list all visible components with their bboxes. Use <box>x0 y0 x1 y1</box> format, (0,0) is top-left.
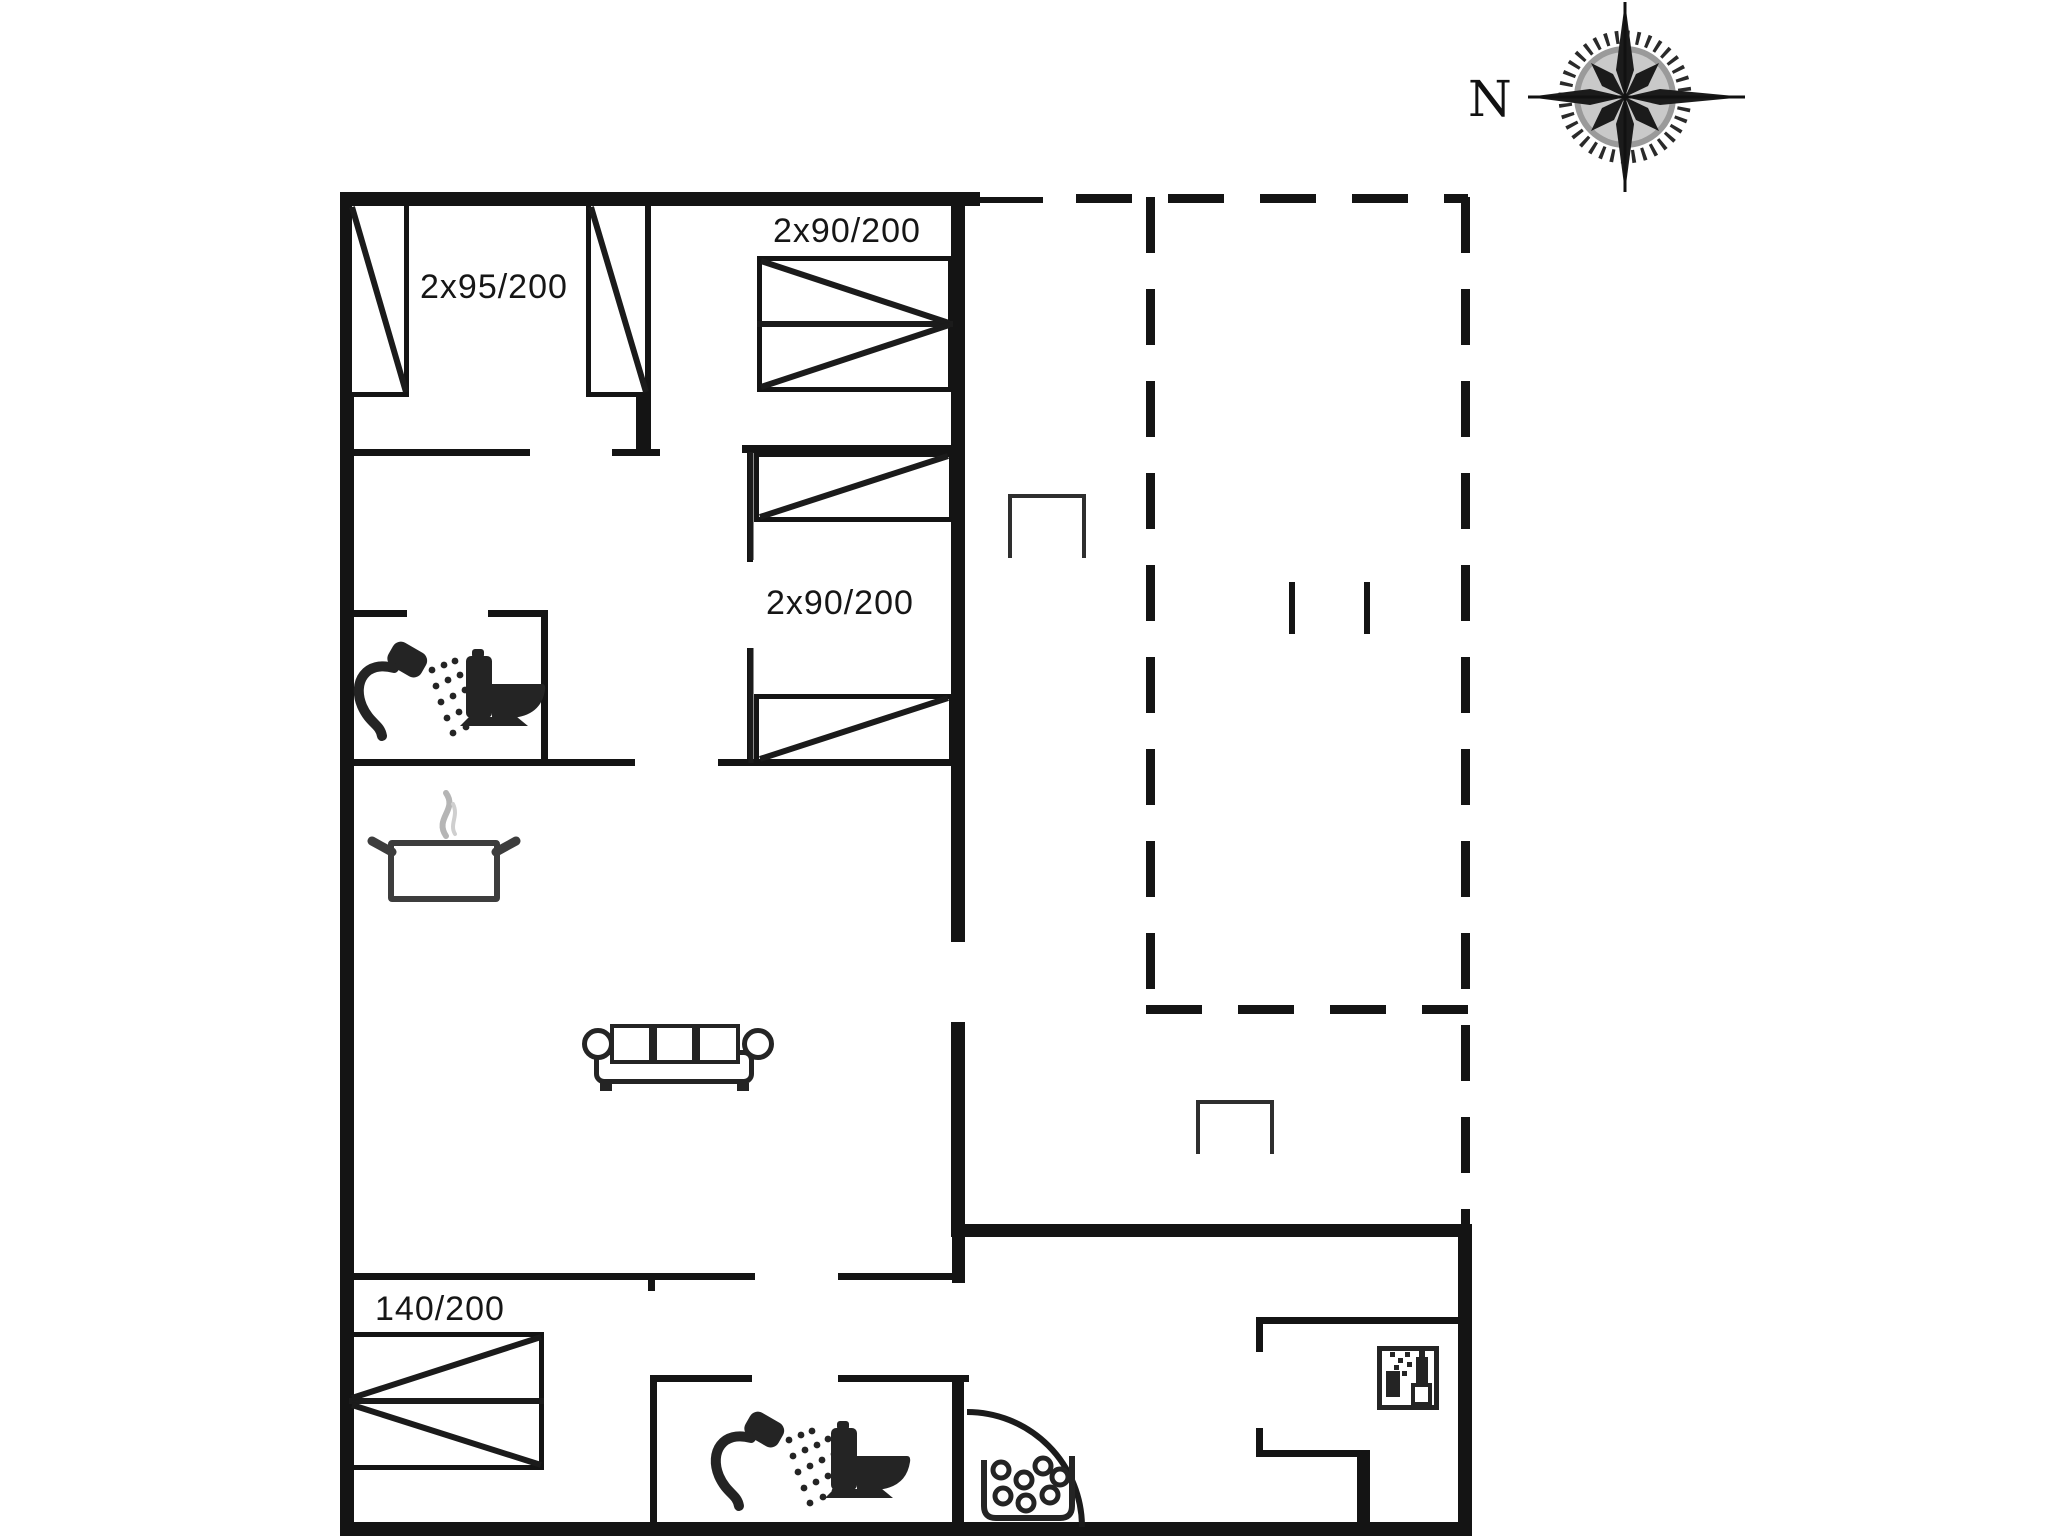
cooking-pot-handles <box>372 841 516 852</box>
steam-icon <box>443 793 455 836</box>
bed-linework <box>349 207 953 1465</box>
compass-rose-icon <box>1500 0 1780 200</box>
plan-linework <box>0 0 2048 1536</box>
dishwasher-contents <box>1386 1351 1430 1404</box>
floor-plan: 2x95/200 2x90/200 2x90/200 140/200 N <box>0 0 2048 1536</box>
pebble-basket-icon <box>984 1456 1072 1518</box>
